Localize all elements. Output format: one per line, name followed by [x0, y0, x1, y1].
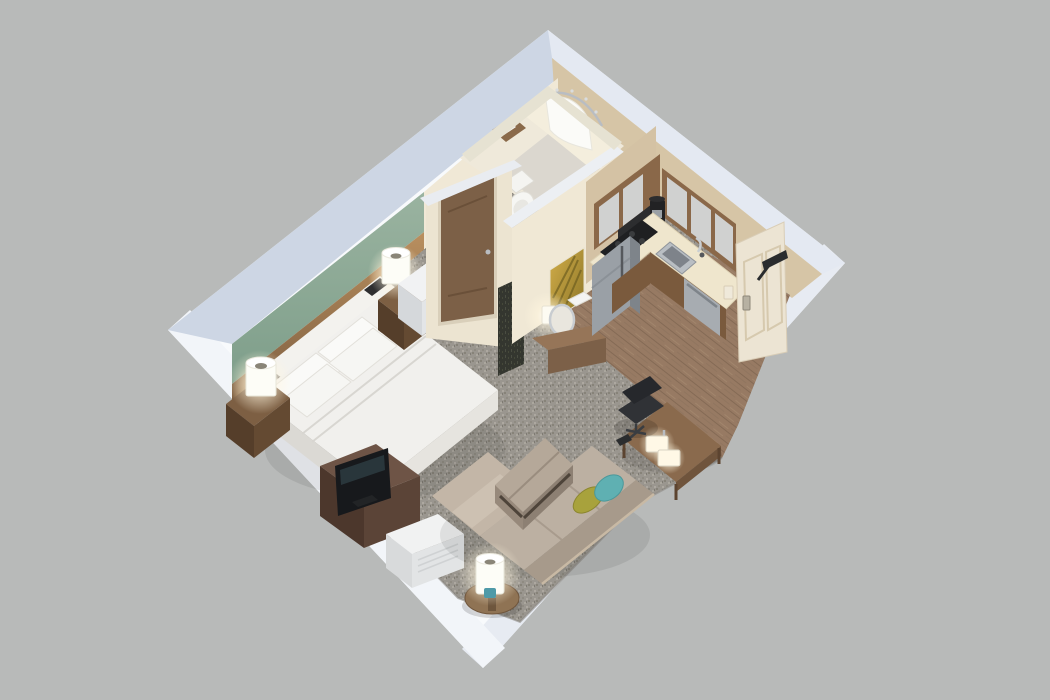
light-switch: [724, 286, 733, 299]
door-knob: [486, 250, 491, 255]
table-lamp-left: [228, 350, 292, 414]
floorplan-render: [0, 0, 1050, 700]
entry-door: [736, 222, 787, 362]
floorplan-svg: [0, 0, 1050, 700]
door-leaf: [441, 176, 494, 322]
door-lock: [743, 296, 750, 310]
faucet-handle: [700, 253, 705, 258]
lamp-base-teal: [484, 588, 496, 598]
side-table: [458, 542, 522, 618]
